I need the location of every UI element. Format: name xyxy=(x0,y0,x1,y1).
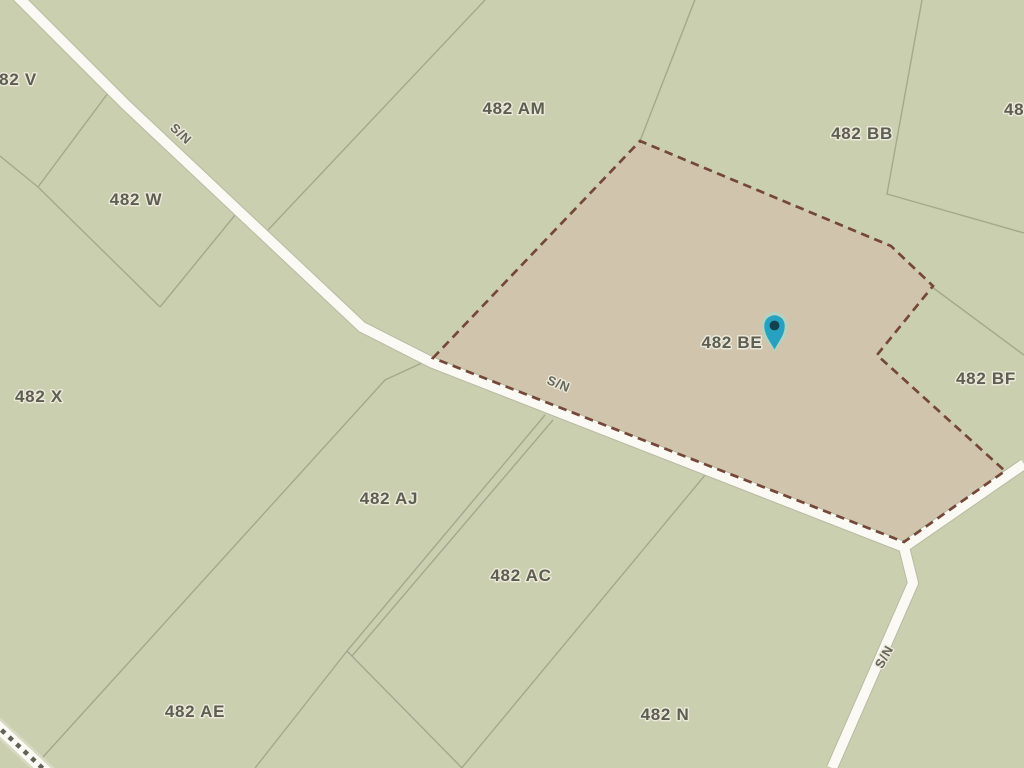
svg-text:482 X: 482 X xyxy=(15,387,63,406)
svg-text:482 W: 482 W xyxy=(110,190,163,209)
svg-text:482 BB: 482 BB xyxy=(831,124,893,143)
svg-text:482 BE: 482 BE xyxy=(702,333,763,352)
svg-text:482 BF: 482 BF xyxy=(956,369,1016,388)
svg-text:482 N: 482 N xyxy=(641,705,690,724)
svg-text:482 V: 482 V xyxy=(0,70,37,89)
svg-text:482 AM: 482 AM xyxy=(482,99,545,118)
svg-text:482 AL: 482 AL xyxy=(1004,100,1024,119)
svg-text:482 AJ: 482 AJ xyxy=(360,489,418,508)
svg-text:482 AC: 482 AC xyxy=(490,566,551,585)
svg-text:482 AE: 482 AE xyxy=(165,702,225,721)
